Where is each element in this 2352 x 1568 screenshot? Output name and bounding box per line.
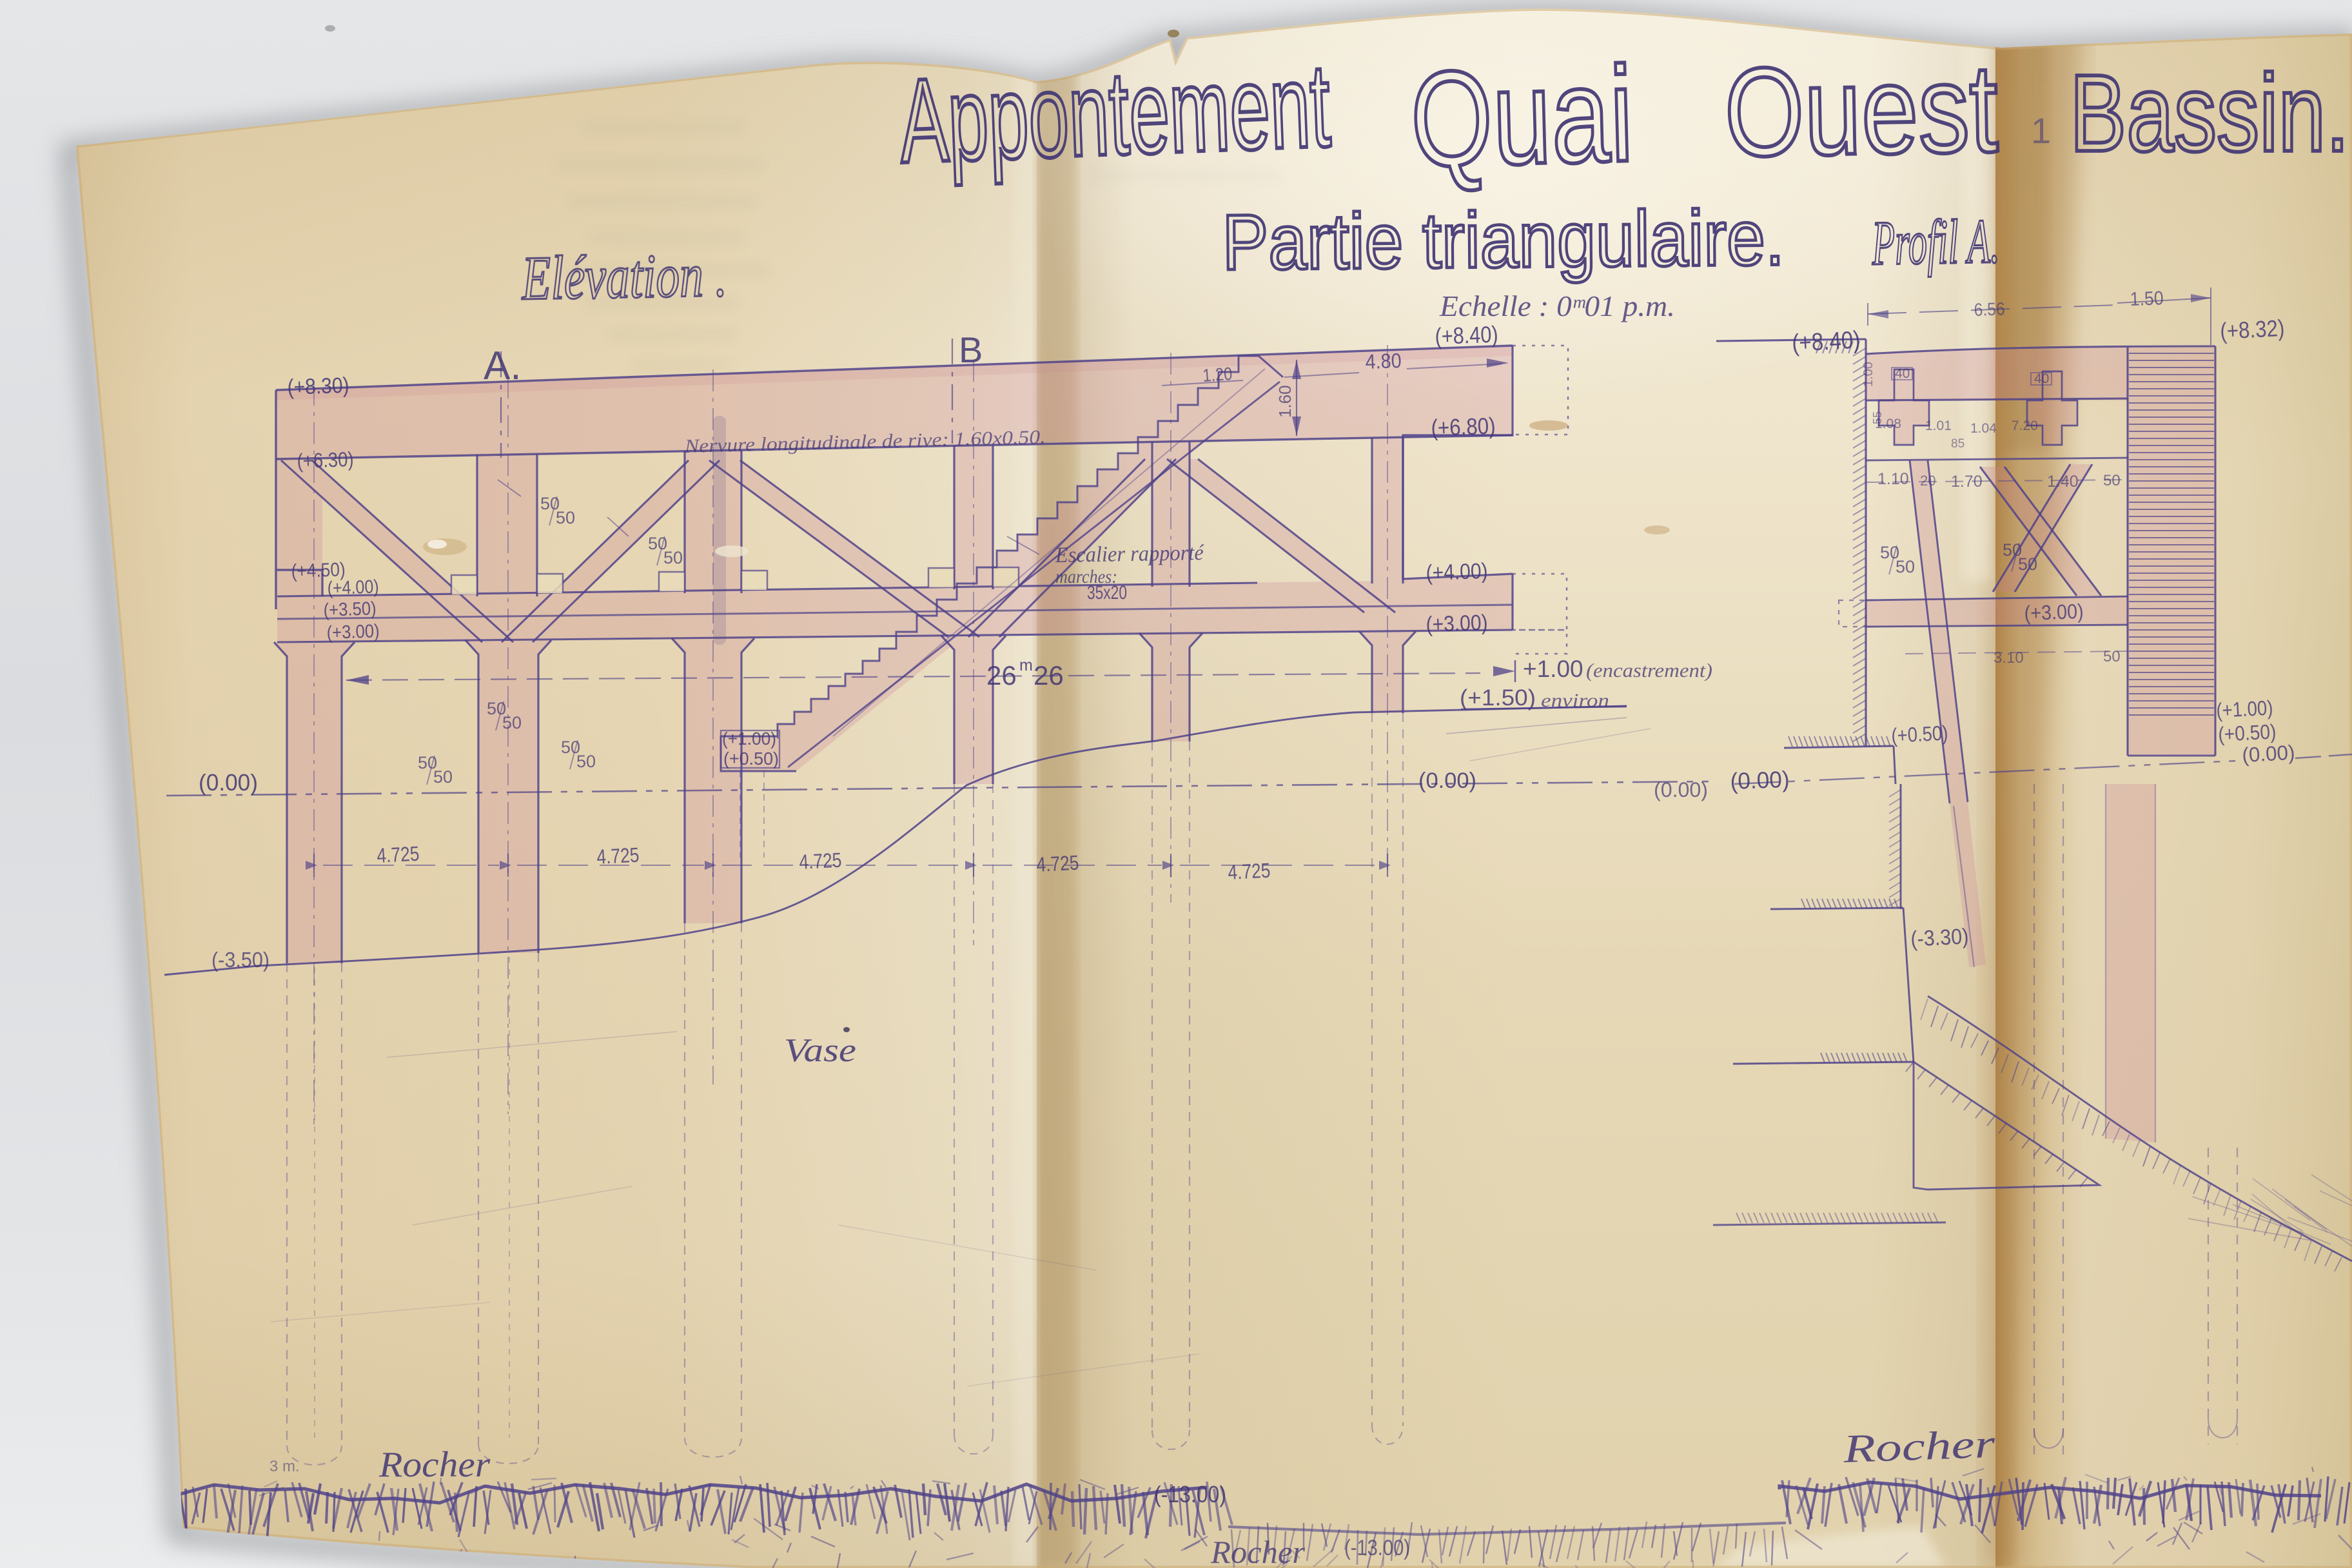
svg-text:(-13.00): (-13.00) xyxy=(1344,1536,1410,1560)
svg-text:40: 40 xyxy=(1895,366,1910,381)
svg-text:50: 50 xyxy=(2103,648,2121,665)
svg-text:1.50: 1.50 xyxy=(2130,288,2164,310)
svg-text:85: 85 xyxy=(1951,437,1965,451)
svg-text:(+3.00): (+3.00) xyxy=(2024,600,2084,625)
svg-text:1.00: 1.00 xyxy=(1861,362,1876,387)
svg-text:3.10: 3.10 xyxy=(1994,649,2024,667)
svg-text:4.725: 4.725 xyxy=(376,842,420,867)
svg-text:Rocher: Rocher xyxy=(378,1445,490,1485)
svg-text:m: m xyxy=(1019,656,1033,674)
svg-text:(encastrement): (encastrement) xyxy=(1586,659,1712,681)
svg-text:(+8.40): (+8.40) xyxy=(1435,321,1498,349)
svg-text:Elévation .: Elévation . xyxy=(520,240,727,313)
svg-text:(+4.00): (+4.00) xyxy=(327,576,379,599)
svg-text:50: 50 xyxy=(576,752,596,771)
svg-text:Rocher: Rocher xyxy=(1842,1422,1997,1471)
svg-text:(+4.00): (+4.00) xyxy=(1426,559,1488,585)
svg-text:Bassin.: Bassin. xyxy=(2070,52,2349,175)
svg-text:50: 50 xyxy=(2103,472,2121,489)
svg-text:35x20: 35x20 xyxy=(1087,582,1127,603)
svg-text:50: 50 xyxy=(502,713,522,732)
svg-text:(+6.80): (+6.80) xyxy=(1431,413,1496,441)
svg-text:(+8.32): (+8.32) xyxy=(2219,315,2285,344)
svg-text:Partie triangulaire.: Partie triangulaire. xyxy=(1222,193,1785,286)
svg-text:4.725: 4.725 xyxy=(798,848,842,874)
svg-text:A.: A. xyxy=(484,344,522,388)
svg-text:(+1.50): (+1.50) xyxy=(1460,685,1536,710)
svg-text:50: 50 xyxy=(663,548,683,567)
svg-text:(-13.00): (-13.00) xyxy=(1154,1481,1226,1507)
svg-text:(+1.00): (+1.00) xyxy=(2215,696,2273,722)
svg-text:26: 26 xyxy=(986,660,1017,691)
svg-text:(0.00): (0.00) xyxy=(1730,766,1790,794)
svg-text:Appontement: Appontement xyxy=(897,39,1333,188)
svg-text:(+0.50): (+0.50) xyxy=(1890,721,1948,747)
svg-text:Escalier rapporté: Escalier rapporté xyxy=(1055,541,1205,567)
svg-text:1.10: 1.10 xyxy=(1877,470,1909,488)
svg-text:50: 50 xyxy=(556,508,575,527)
svg-text:(+3.00): (+3.00) xyxy=(1426,611,1488,637)
svg-text:50: 50 xyxy=(433,767,453,787)
svg-text:1.01: 1.01 xyxy=(1925,418,1952,433)
svg-text:(+6.30): (+6.30) xyxy=(297,447,354,473)
svg-text:(+8.30): (+8.30) xyxy=(287,373,349,400)
svg-text:1: 1 xyxy=(2031,110,2051,151)
svg-text:Profil A.: Profil A. xyxy=(1871,207,2000,279)
svg-text:1.60: 1.60 xyxy=(1275,385,1295,418)
svg-text:4.80: 4.80 xyxy=(1365,349,1402,373)
svg-text:4.725: 4.725 xyxy=(1035,851,1079,876)
svg-text:4.725: 4.725 xyxy=(1227,859,1271,884)
svg-text:(0.00): (0.00) xyxy=(1418,769,1476,793)
svg-text:Vase: Vase xyxy=(784,1032,856,1069)
svg-text:(0.00): (0.00) xyxy=(2241,741,2295,767)
svg-text:(0.00): (0.00) xyxy=(1654,778,1708,801)
svg-text:(-3.30): (-3.30) xyxy=(1910,924,1969,952)
svg-text:Echelle : 0ᵐ01 p.m.: Echelle : 0ᵐ01 p.m. xyxy=(1439,289,1675,322)
svg-text:+1.00: +1.00 xyxy=(1523,656,1583,682)
svg-text:(+0.50): (+0.50) xyxy=(723,749,779,769)
svg-text:(-3.50): (-3.50) xyxy=(211,948,269,972)
svg-text:B: B xyxy=(959,329,983,370)
svg-text:1.70: 1.70 xyxy=(1951,473,1983,491)
svg-text:26: 26 xyxy=(1034,660,1064,691)
svg-text:20: 20 xyxy=(1920,473,1935,489)
svg-text:1.04: 1.04 xyxy=(1970,421,1997,436)
svg-text:(+3.50): (+3.50) xyxy=(323,598,377,621)
svg-text:Quai: Quai xyxy=(1409,38,1635,195)
svg-text:(+8.40): (+8.40) xyxy=(1791,326,1861,357)
svg-text:Rocher: Rocher xyxy=(1210,1534,1306,1568)
svg-text:4.725: 4.725 xyxy=(596,843,640,868)
svg-text:(+1.00): (+1.00) xyxy=(722,729,776,749)
svg-text:3 m.: 3 m. xyxy=(269,1458,300,1475)
svg-text:7.20: 7.20 xyxy=(2012,418,2038,433)
svg-text:(+3.00): (+3.00) xyxy=(326,621,380,643)
svg-text:(0.00): (0.00) xyxy=(199,769,258,796)
svg-text:6.56: 6.56 xyxy=(1974,299,2005,320)
svg-text:55: 55 xyxy=(1871,411,1884,424)
svg-text:Ouest: Ouest xyxy=(1723,38,1999,183)
svg-text:40: 40 xyxy=(2034,371,2049,386)
svg-text:50: 50 xyxy=(1896,557,1915,576)
